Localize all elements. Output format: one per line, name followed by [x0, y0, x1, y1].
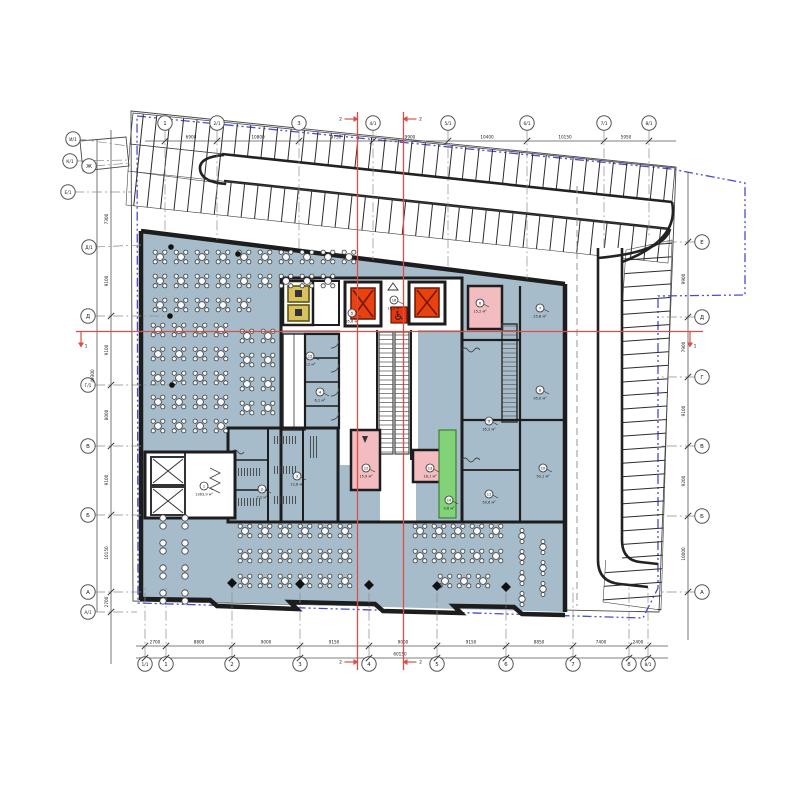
- axis-bubble-bottom-4-label: 4: [367, 662, 371, 668]
- chair: [247, 308, 251, 312]
- dining-table: [178, 302, 185, 309]
- dining-table: [160, 565, 166, 571]
- dining-table: [160, 548, 166, 554]
- chair: [224, 429, 228, 433]
- chair: [328, 559, 332, 563]
- axis-bubble-top-5/1-label: 5/1: [444, 121, 451, 127]
- chair: [172, 371, 176, 375]
- chair: [195, 298, 199, 302]
- chair: [261, 377, 265, 381]
- dining-table: [176, 399, 183, 406]
- chair: [184, 250, 188, 254]
- chair: [237, 308, 241, 312]
- axis-bubble-bottom-1-label: 1: [164, 662, 167, 668]
- dim-text: 2400: [633, 640, 644, 645]
- dining-table: [197, 399, 204, 406]
- chair: [499, 524, 503, 528]
- wc-stall-screen: [236, 468, 260, 476]
- chair: [268, 584, 272, 588]
- chair: [163, 250, 167, 254]
- chair: [352, 250, 356, 254]
- dining-table: [182, 515, 188, 521]
- dining-table: [436, 528, 443, 535]
- dim-text: 7900: [681, 341, 686, 352]
- dining-table: [325, 254, 332, 261]
- dining-table: [480, 578, 487, 585]
- chair: [237, 260, 241, 264]
- dining-table: [155, 423, 162, 430]
- chair: [182, 395, 186, 399]
- chair: [457, 574, 461, 578]
- dining-table: [325, 278, 332, 285]
- axis-bubble-left-А/1-label: А/1: [84, 610, 91, 616]
- chair: [182, 323, 186, 327]
- chair: [348, 534, 352, 538]
- chair: [268, 534, 272, 538]
- chair: [240, 353, 244, 357]
- axis-bubble-left-Д-label: Д: [86, 314, 90, 320]
- axis-bubble-bottom-6-label: 6: [504, 662, 508, 668]
- chair: [216, 274, 220, 278]
- chair: [413, 534, 417, 538]
- chair: [193, 429, 197, 433]
- dining-table: [262, 553, 269, 560]
- chair: [163, 284, 167, 288]
- chair: [308, 559, 312, 563]
- room-number: 2: [261, 488, 263, 492]
- chair: [499, 549, 503, 553]
- dining-table: [197, 375, 204, 382]
- chair: [298, 559, 302, 563]
- chair: [161, 381, 165, 385]
- dining-table: [493, 553, 500, 560]
- axis-bubble-corner-К/1-label: К/1: [66, 159, 74, 165]
- chair: [214, 357, 218, 361]
- chair: [182, 429, 186, 433]
- axis-bubble-bottom-7-label: 7: [571, 662, 574, 668]
- chair: [247, 298, 251, 302]
- chair: [161, 323, 165, 327]
- chair: [318, 549, 322, 553]
- chair: [308, 524, 312, 528]
- dining-table: [218, 351, 225, 358]
- chair: [338, 559, 342, 563]
- room-area: 7,2 м²: [256, 496, 268, 500]
- room-area: 6,1 м²: [314, 399, 326, 403]
- dining-table: [242, 528, 249, 535]
- dim-text: 8000: [104, 409, 109, 420]
- chair: [432, 534, 436, 538]
- dining-table: [182, 548, 188, 554]
- chair: [331, 250, 335, 254]
- dining-table: [199, 302, 206, 309]
- chair: [258, 524, 262, 528]
- dumbwaiter-2-cab: [295, 309, 302, 316]
- chair: [153, 274, 157, 278]
- service-lift-block: [145, 452, 235, 518]
- axis-bubble-bottom-1/1-label: 1/1: [141, 662, 148, 668]
- chair: [261, 387, 265, 391]
- chair: [261, 411, 265, 415]
- dining-table: [182, 523, 188, 529]
- chair: [480, 559, 484, 563]
- chair: [338, 524, 342, 528]
- chair: [279, 274, 283, 278]
- room-area: 1363,9 м²: [195, 493, 213, 497]
- chair: [288, 534, 292, 538]
- chair: [240, 363, 244, 367]
- chair: [480, 524, 484, 528]
- dining-table: [241, 254, 248, 261]
- chair: [442, 549, 446, 553]
- chair: [288, 559, 292, 563]
- chair: [258, 284, 262, 288]
- dim-text: 10150: [558, 135, 572, 140]
- dining-table: [436, 553, 443, 560]
- chair: [193, 419, 197, 423]
- room-area: 18,3 м²: [387, 307, 401, 311]
- column-dot: [169, 382, 175, 388]
- chair: [163, 308, 167, 312]
- chair: [174, 298, 178, 302]
- axis-bubble-right-А-label: А: [700, 590, 704, 596]
- chair: [328, 549, 332, 553]
- section-label: 1: [85, 344, 88, 350]
- chair: [161, 333, 165, 337]
- chair: [172, 323, 176, 327]
- dining-table: [218, 399, 225, 406]
- column-dot: [235, 251, 241, 257]
- chair: [203, 429, 207, 433]
- chair: [184, 274, 188, 278]
- dining-table: [155, 375, 162, 382]
- dining-table: [244, 357, 251, 364]
- chair: [238, 559, 242, 563]
- dumbwaiter-1-cab: [295, 290, 302, 297]
- chair: [214, 347, 218, 351]
- room-number: 1: [203, 485, 205, 489]
- chair: [489, 534, 493, 538]
- chair: [271, 411, 275, 415]
- chair: [250, 353, 254, 357]
- dining-table: [157, 302, 164, 309]
- chair: [203, 419, 207, 423]
- axis-bubble-right-В-label: В: [700, 444, 704, 450]
- chair: [174, 250, 178, 254]
- chair: [300, 250, 304, 254]
- dining-table: [455, 553, 462, 560]
- chair: [321, 250, 325, 254]
- room-number: 7: [539, 307, 541, 311]
- chair: [461, 534, 465, 538]
- chair: [300, 284, 304, 288]
- chair: [240, 401, 244, 405]
- room-area: 15,2 м²: [473, 310, 487, 314]
- dim-text: 5950: [621, 135, 632, 140]
- axis-bubble-bottom-8/1-label: 8/1: [644, 662, 651, 668]
- chair: [423, 524, 427, 528]
- axis-bubble-top-8/1-label: 8/1: [645, 121, 652, 127]
- chair: [461, 549, 465, 553]
- dim-text: 10150: [104, 546, 109, 560]
- chair: [470, 534, 474, 538]
- chair: [331, 260, 335, 264]
- axis-bubble-right-Б-label: Б: [700, 514, 704, 520]
- dining-table: [304, 278, 311, 285]
- chair: [216, 250, 220, 254]
- chair: [182, 419, 186, 423]
- chair: [520, 529, 524, 533]
- chair: [278, 549, 282, 553]
- axis-bubble-left-А-label: А: [86, 590, 90, 596]
- chair: [308, 549, 312, 553]
- dining-table: [242, 578, 249, 585]
- dim-text: 9150: [329, 640, 340, 645]
- chair: [193, 333, 197, 337]
- chair: [298, 549, 302, 553]
- room-area: 95,0 м²: [533, 397, 547, 401]
- chair: [499, 534, 503, 538]
- chair: [203, 347, 207, 351]
- chair: [224, 323, 228, 327]
- chair: [172, 429, 176, 433]
- axis-bubble-top-2/1-label: 2/1: [213, 121, 220, 127]
- chair: [237, 284, 241, 288]
- dining-table: [160, 523, 166, 529]
- dining-table: [197, 327, 204, 334]
- chair: [161, 371, 165, 375]
- chair: [442, 559, 446, 563]
- dining-table: [262, 578, 269, 585]
- room-number: 3: [296, 475, 298, 479]
- chair: [432, 559, 436, 563]
- chair: [451, 534, 455, 538]
- dim-text: 9000: [261, 640, 272, 645]
- chair: [224, 381, 228, 385]
- chair: [248, 584, 252, 588]
- chair: [203, 395, 207, 399]
- chair: [182, 347, 186, 351]
- chair: [195, 274, 199, 278]
- chair: [161, 395, 165, 399]
- room-area: 12,8 м²: [290, 483, 304, 487]
- dining-table: [182, 590, 188, 596]
- chair: [151, 419, 155, 423]
- chair: [520, 540, 524, 544]
- chair: [288, 524, 292, 528]
- chair: [161, 347, 165, 351]
- dim-text: 9100: [104, 275, 109, 286]
- chair: [328, 534, 332, 538]
- axis-bubble-top-4/1-label: 4/1: [369, 121, 376, 127]
- chair: [226, 298, 230, 302]
- chair: [250, 363, 254, 367]
- axis-bubble-top-3-label: 3: [297, 121, 300, 127]
- room-area: 15,9 м²: [359, 475, 373, 479]
- axis-bubble-corner-И/1-label: И/1: [69, 137, 77, 143]
- chair: [182, 357, 186, 361]
- chair: [182, 371, 186, 375]
- dining-table: [455, 528, 462, 535]
- chair: [237, 274, 241, 278]
- chair: [224, 371, 228, 375]
- dining-table: [155, 327, 162, 334]
- chair: [328, 584, 332, 588]
- chair: [338, 584, 342, 588]
- room-area: 50,1 м²: [536, 475, 550, 479]
- dining-table: [241, 278, 248, 285]
- chair: [184, 260, 188, 264]
- chair: [451, 559, 455, 563]
- chair: [182, 405, 186, 409]
- escalator-2: [395, 332, 409, 454]
- chair: [520, 550, 524, 554]
- chair: [248, 524, 252, 528]
- dim-text: 60150: [393, 652, 407, 657]
- dining-table: [262, 528, 269, 535]
- chair: [174, 308, 178, 312]
- chair: [224, 357, 228, 361]
- chair: [172, 395, 176, 399]
- room-area: 25,8 м²: [533, 315, 547, 319]
- axis-leader-И/1: [79, 139, 128, 146]
- chair: [467, 584, 471, 588]
- axis-bubble-bottom-2-label: 2: [230, 662, 233, 668]
- chair: [476, 574, 480, 578]
- chair: [214, 395, 218, 399]
- chair: [271, 353, 275, 357]
- chair: [268, 250, 272, 254]
- chair: [268, 524, 272, 528]
- chair: [520, 582, 524, 586]
- dining-table: [346, 254, 353, 261]
- chair: [151, 395, 155, 399]
- chair: [247, 250, 251, 254]
- axis-bubble-top-7/1-label: 7/1: [600, 121, 607, 127]
- dining-table: [176, 423, 183, 430]
- chair: [203, 381, 207, 385]
- chair: [451, 524, 455, 528]
- chair: [308, 574, 312, 578]
- chair: [216, 298, 220, 302]
- chair: [163, 298, 167, 302]
- chair: [151, 333, 155, 337]
- chair: [438, 574, 442, 578]
- chair: [214, 381, 218, 385]
- chair: [151, 347, 155, 351]
- chair: [214, 333, 218, 337]
- chair: [193, 371, 197, 375]
- chair: [348, 549, 352, 553]
- chair: [226, 250, 230, 254]
- chair: [432, 524, 436, 528]
- chair: [216, 284, 220, 288]
- axis-bubble-corner-Д/1-label: Д/1: [85, 245, 93, 251]
- chair: [279, 284, 283, 288]
- chair: [271, 377, 275, 381]
- dining-table: [160, 515, 166, 521]
- dining-table: [176, 375, 183, 382]
- chair: [448, 574, 452, 578]
- chair: [153, 260, 157, 264]
- chair: [153, 250, 157, 254]
- chair: [214, 371, 218, 375]
- dining-table: [155, 399, 162, 406]
- axis-bubble-top-6/1-label: 6/1: [523, 121, 530, 127]
- dining-table: [540, 544, 546, 550]
- chair: [258, 250, 262, 254]
- chair: [226, 284, 230, 288]
- room-number: 5: [351, 312, 353, 316]
- chair: [238, 584, 242, 588]
- chair: [161, 405, 165, 409]
- axis-bubble-bottom-3-label: 3: [298, 662, 301, 668]
- column-dot: [168, 244, 174, 250]
- chair: [250, 401, 254, 405]
- axis-bubble-right-Д-label: Д: [700, 315, 704, 321]
- chair: [151, 429, 155, 433]
- chair: [321, 260, 325, 264]
- chair: [261, 363, 265, 367]
- chair: [195, 250, 199, 254]
- dining-table: [282, 578, 289, 585]
- chair: [348, 559, 352, 563]
- chair: [195, 260, 199, 264]
- dim-text: 10000: [681, 547, 686, 561]
- chair: [195, 308, 199, 312]
- chair: [279, 250, 283, 254]
- chair: [541, 572, 545, 576]
- chair: [258, 559, 262, 563]
- chair: [271, 363, 275, 367]
- chair: [174, 260, 178, 264]
- room-number: 16: [392, 299, 397, 303]
- chair: [289, 250, 293, 254]
- chair: [489, 549, 493, 553]
- chair: [184, 308, 188, 312]
- chair: [288, 574, 292, 578]
- chair: [214, 429, 218, 433]
- chair: [153, 298, 157, 302]
- chair: [247, 260, 251, 264]
- chair: [461, 524, 465, 528]
- chair: [308, 534, 312, 538]
- dining-table: [182, 540, 188, 546]
- dim-text: 9100: [681, 405, 686, 416]
- dining-table: [282, 528, 289, 535]
- dim-text: 9750: [331, 135, 342, 140]
- dining-table: [155, 351, 162, 358]
- chair: [224, 395, 228, 399]
- dining-table: [322, 528, 329, 535]
- dining-table: [265, 381, 272, 388]
- dining-table: [493, 528, 500, 535]
- chair: [298, 534, 302, 538]
- axis-bubble-left-Г/1-label: Г/1: [85, 383, 92, 389]
- room-below-escalators: [380, 455, 416, 522]
- chair: [342, 260, 346, 264]
- chair: [193, 357, 197, 361]
- dining-table: [519, 596, 525, 602]
- chair: [541, 593, 545, 597]
- dining-table: [176, 351, 183, 358]
- chair: [480, 534, 484, 538]
- chair: [331, 274, 335, 278]
- dining-table: [265, 333, 272, 340]
- chair: [161, 419, 165, 423]
- dim-text: 6900: [186, 135, 197, 140]
- chair: [486, 574, 490, 578]
